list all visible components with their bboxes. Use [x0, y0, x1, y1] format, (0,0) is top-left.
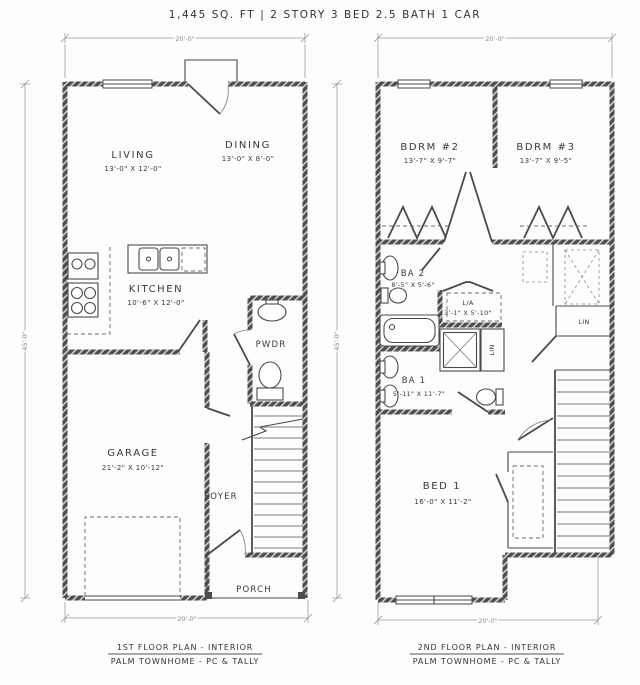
dim-top-1st: 20'-0" — [175, 35, 195, 43]
lin-hall-label: LIN — [578, 318, 589, 326]
room-label-garage: GARAGE — [107, 448, 158, 459]
floor-plan-sheet: 1,445 SQ. FT | 2 STORY 3 BED 2.5 BATH 1 … — [0, 0, 640, 685]
interior-walls-2nd — [378, 84, 612, 412]
room-size-kitchen: 10'-6" X 12'-0" — [127, 299, 184, 307]
bed1-closet-dashed — [513, 466, 543, 538]
room-label-kitchen: KITCHEN — [129, 284, 184, 295]
room-size-ba2: 8'-5" X 5'-6" — [391, 281, 434, 289]
room-label-porch: PORCH — [236, 585, 272, 595]
bdrm2-closet-bifold — [388, 207, 446, 238]
stair-treads-1st — [254, 416, 303, 548]
ba2-bathtub-inner — [384, 319, 435, 343]
ba2-faucet — [380, 262, 385, 274]
dim-top-2nd: 20'-0" — [485, 35, 505, 43]
ba2-door-leaf — [422, 248, 440, 270]
room-size-bdrm2: 13'-7" X 9'-7" — [404, 157, 456, 165]
lin-closet-label: LIN — [488, 344, 496, 355]
ba1-toilet-tank — [496, 389, 503, 405]
room-label-pwdr: PWDR — [256, 340, 287, 350]
pantry-wall — [178, 320, 200, 352]
kitchen-sink-right — [160, 248, 179, 270]
bed1-door-leaf — [518, 418, 553, 440]
front-door-swing — [240, 530, 245, 555]
ba2-toilet-bowl — [390, 288, 407, 303]
room-label-bdrm3: BDRM #3 — [516, 142, 575, 153]
front-door-leaf — [207, 530, 240, 555]
entry-alcove — [185, 60, 237, 82]
hall-dashed-box — [523, 252, 547, 282]
pwdr-faucet — [266, 300, 278, 304]
second-floor-plan: 20'-0" 45'-0" 20'-0" — [332, 33, 616, 666]
room-label-dining: DINING — [225, 140, 271, 151]
ba2-toilet-tank — [381, 288, 388, 303]
room-label-bdrm2: BDRM #2 — [400, 142, 459, 153]
kitchen-sink-left — [139, 248, 158, 270]
room-label-foyer: FOYER — [204, 492, 238, 502]
room-size-dining: 13'-0" X 8'-0" — [222, 155, 274, 163]
room-size-garage: 21'-2" X 10'-12" — [102, 464, 164, 472]
garage-door-dashed — [85, 517, 180, 596]
ba1-faucet-2 — [380, 390, 385, 402]
lin-hall-door — [532, 336, 556, 362]
room-size-living: 13'-0" X 12'-0" — [104, 165, 161, 173]
room-label-ba2: BA 2 — [401, 269, 426, 279]
dim-side-2nd: 45'-0" — [333, 331, 341, 351]
room-label-living: LIVING — [111, 150, 154, 161]
porch-post-right — [298, 592, 305, 599]
dim-bottom-2nd: 20'-0" — [478, 617, 498, 625]
entry-door-leaf — [188, 84, 220, 114]
sheet-title: 1,445 SQ. FT | 2 STORY 3 BED 2.5 BATH 1 … — [169, 9, 481, 21]
caption-2nd-line2: PALM TOWNHOME - PC & TALLY — [413, 657, 562, 666]
caption-1st-line1: 1ST FLOOR PLAN - INTERIOR — [117, 643, 254, 652]
dim-side-1st: 45'-0" — [21, 331, 29, 351]
room-label-ba1: BA 1 — [402, 376, 427, 386]
mech-box-x — [565, 250, 599, 304]
pwdr-sink — [258, 303, 286, 321]
caption-1st-line2: PALM TOWNHOME - PC & TALLY — [111, 657, 260, 666]
ba1-faucet-1 — [380, 361, 385, 373]
room-label-bed1: BED 1 — [423, 481, 461, 492]
room-size-bdrm3: 13'-7" X 9'-5" — [520, 157, 572, 165]
room-size-bed1: 16'-0" X 11'-2" — [414, 498, 471, 506]
bdrm3-closet-bifold — [524, 207, 582, 238]
dim-bottom-1st: 20'-0" — [177, 615, 197, 623]
pwdr-toilet-tank — [257, 388, 283, 400]
garage-door-opening — [85, 596, 180, 600]
room-size-laundry: 3'-1" X 5'-10" — [444, 309, 492, 317]
dim-line-bottom-2nd — [374, 557, 602, 625]
laundry-doors — [443, 282, 493, 291]
caption-2nd-line1: 2ND FLOOR PLAN - INTERIOR — [418, 643, 557, 652]
pwdr-toilet-bowl — [259, 362, 281, 388]
garage-door-leaf — [207, 408, 230, 416]
room-label-laundry: L/A — [462, 299, 473, 307]
porch-post-left — [205, 592, 212, 599]
stair-treads-2nd — [557, 380, 610, 548]
floor-plan-drawing: 1,445 SQ. FT | 2 STORY 3 BED 2.5 BATH 1 … — [0, 0, 640, 685]
ba1-toilet-bowl — [477, 389, 496, 405]
pwdr-door-swing — [234, 330, 250, 334]
bed1-closet-door — [496, 474, 508, 502]
bedroom-door-leaves — [444, 172, 492, 242]
pwdr-door-leaf — [234, 334, 250, 365]
entry-door-swing — [220, 86, 228, 114]
room-size-ba1: 5'-11" X 11'-7" — [393, 390, 445, 398]
first-floor-plan: 20'-0" 45'-0" 20'-0" — [20, 33, 312, 666]
